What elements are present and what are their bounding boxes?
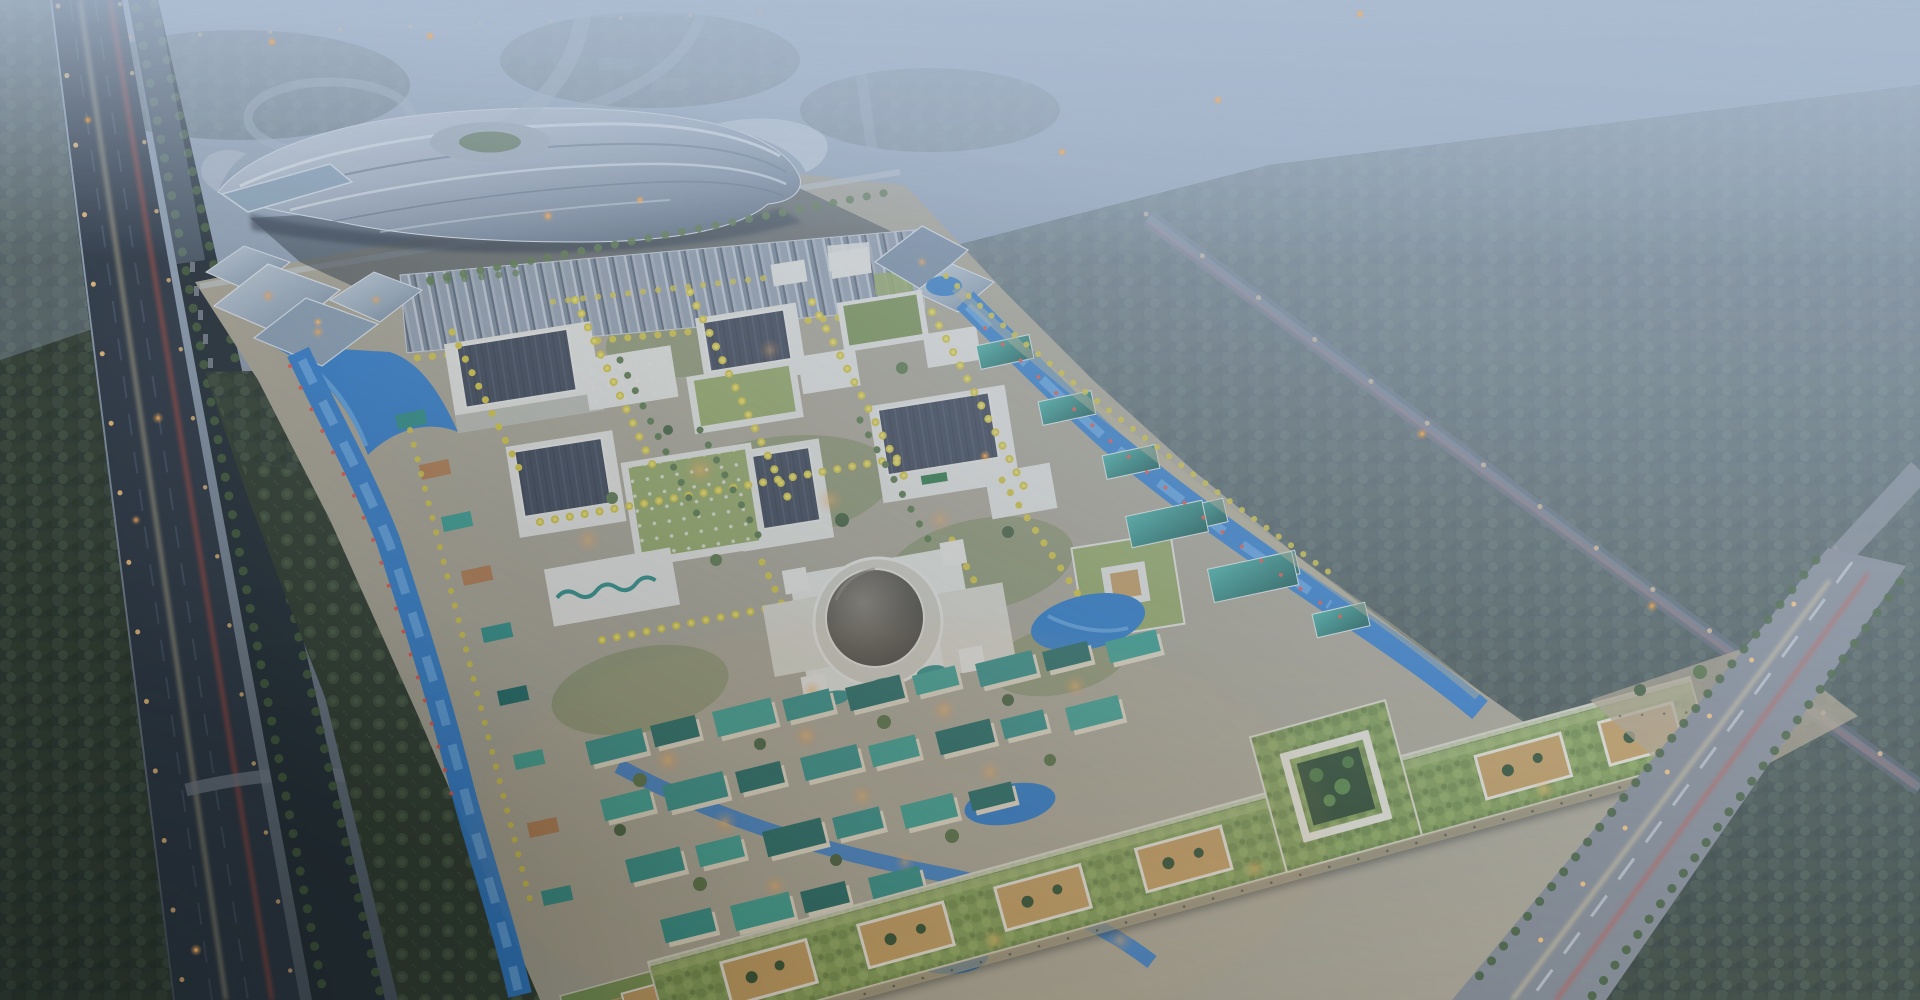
- aerial-rendering: [0, 0, 1920, 1000]
- atmosphere: [0, 0, 1920, 1000]
- rendering-canvas: [0, 0, 1920, 1000]
